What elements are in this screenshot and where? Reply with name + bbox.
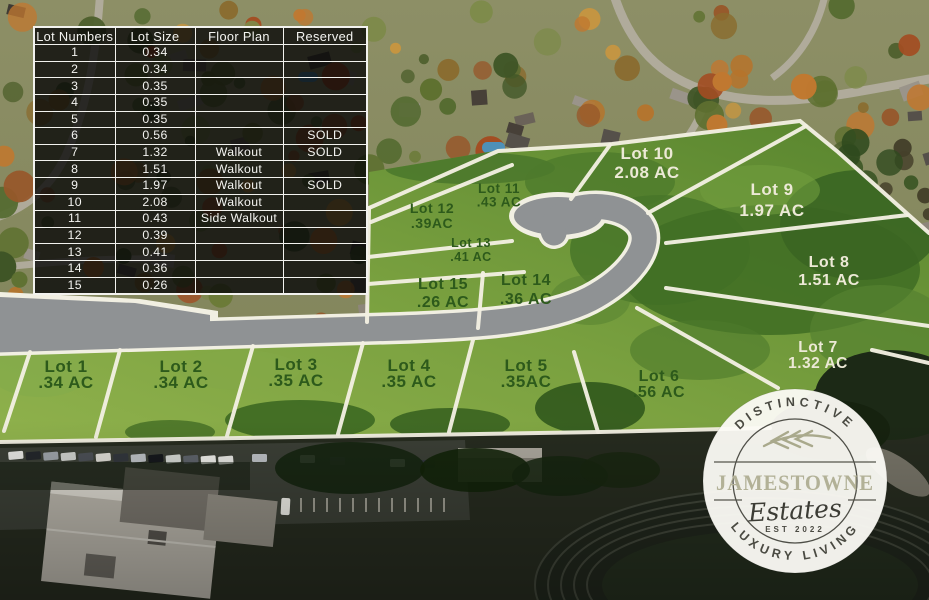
table-cell: SOLD	[283, 144, 367, 161]
lot-table-panel: Lot Numbers Lot Size Floor Plan Reserved…	[33, 26, 366, 295]
table-cell: 0.43	[115, 211, 195, 228]
table-cell	[195, 111, 283, 128]
table-row: 30.35	[34, 78, 367, 95]
jamestowne-estates-badge: DISTINCTIVE LUXURY LIVING JAMESTOWNE Est…	[702, 388, 888, 574]
table-cell: 0.41	[115, 244, 195, 261]
col-header-reserved: Reserved	[283, 27, 367, 45]
col-header-lot-numbers: Lot Numbers	[34, 27, 115, 45]
table-cell: 10	[34, 194, 115, 211]
table-row: 120.39	[34, 227, 367, 244]
lot-table: Lot Numbers Lot Size Floor Plan Reserved…	[33, 26, 368, 295]
table-cell	[283, 227, 367, 244]
table-row: 140.36	[34, 260, 367, 277]
table-cell: 9	[34, 177, 115, 194]
table-cell	[283, 244, 367, 261]
table-cell: 0.26	[115, 277, 195, 294]
table-cell: Walkout	[195, 144, 283, 161]
table-row: 71.32WalkoutSOLD	[34, 144, 367, 161]
table-row: 50.35	[34, 111, 367, 128]
table-cell	[195, 61, 283, 78]
table-cell: 0.34	[115, 45, 195, 62]
table-cell: 15	[34, 277, 115, 294]
table-cell: 1.32	[115, 144, 195, 161]
table-row: 40.35	[34, 94, 367, 111]
table-cell: SOLD	[283, 128, 367, 145]
table-row: 102.08Walkout	[34, 194, 367, 211]
table-cell: 2	[34, 61, 115, 78]
table-cell: 4	[34, 94, 115, 111]
table-cell: 14	[34, 260, 115, 277]
table-cell	[195, 277, 283, 294]
table-cell: Walkout	[195, 194, 283, 211]
table-cell	[283, 45, 367, 62]
table-row: 150.26	[34, 277, 367, 294]
table-cell: 0.35	[115, 78, 195, 95]
col-header-lot-size: Lot Size	[115, 27, 195, 45]
table-cell	[195, 45, 283, 62]
table-cell	[283, 78, 367, 95]
table-cell: 3	[34, 78, 115, 95]
table-row: 110.43Side Walkout	[34, 211, 367, 228]
table-cell: 7	[34, 144, 115, 161]
table-cell	[195, 78, 283, 95]
col-header-floor-plan: Floor Plan	[195, 27, 283, 45]
table-cell: 13	[34, 244, 115, 261]
table-row: 130.41	[34, 244, 367, 261]
table-cell	[283, 61, 367, 78]
table-cell	[283, 260, 367, 277]
table-cell: 0.36	[115, 260, 195, 277]
table-cell: 0.35	[115, 94, 195, 111]
table-cell	[195, 244, 283, 261]
table-cell	[283, 161, 367, 178]
table-cell: Walkout	[195, 177, 283, 194]
table-cell: SOLD	[283, 177, 367, 194]
table-cell	[195, 227, 283, 244]
aerial-lot-map-image: Lot 1.34 ACLot 2.34 ACLot 3.35 ACLot 4.3…	[0, 0, 929, 600]
table-cell	[283, 111, 367, 128]
table-cell: 2.08	[115, 194, 195, 211]
table-cell: 0.56	[115, 128, 195, 145]
table-cell	[283, 94, 367, 111]
table-cell: 12	[34, 227, 115, 244]
table-cell: 1	[34, 45, 115, 62]
table-cell	[195, 128, 283, 145]
table-cell	[283, 194, 367, 211]
table-cell: Walkout	[195, 161, 283, 178]
table-cell	[283, 277, 367, 294]
table-cell: 1.51	[115, 161, 195, 178]
table-cell: 1.97	[115, 177, 195, 194]
table-cell	[195, 260, 283, 277]
badge-svg: DISTINCTIVE LUXURY LIVING JAMESTOWNE Est…	[702, 388, 888, 574]
table-row: 20.34	[34, 61, 367, 78]
table-row: 10.34	[34, 45, 367, 62]
table-header-row: Lot Numbers Lot Size Floor Plan Reserved	[34, 27, 367, 45]
table-cell: 11	[34, 211, 115, 228]
table-cell	[283, 211, 367, 228]
table-cell: 6	[34, 128, 115, 145]
table-cell: 0.39	[115, 227, 195, 244]
table-cell: Side Walkout	[195, 211, 283, 228]
table-row: 60.56SOLD	[34, 128, 367, 145]
table-cell: 0.35	[115, 111, 195, 128]
table-cell: 8	[34, 161, 115, 178]
badge-wordmark: JAMESTOWNE	[716, 470, 874, 495]
table-cell: 0.34	[115, 61, 195, 78]
table-cell	[195, 94, 283, 111]
badge-script-text: Estates	[746, 494, 842, 528]
table-row: 81.51Walkout	[34, 161, 367, 178]
badge-est-text: EST 2022	[765, 525, 825, 534]
table-cell: 5	[34, 111, 115, 128]
table-row: 91.97WalkoutSOLD	[34, 177, 367, 194]
